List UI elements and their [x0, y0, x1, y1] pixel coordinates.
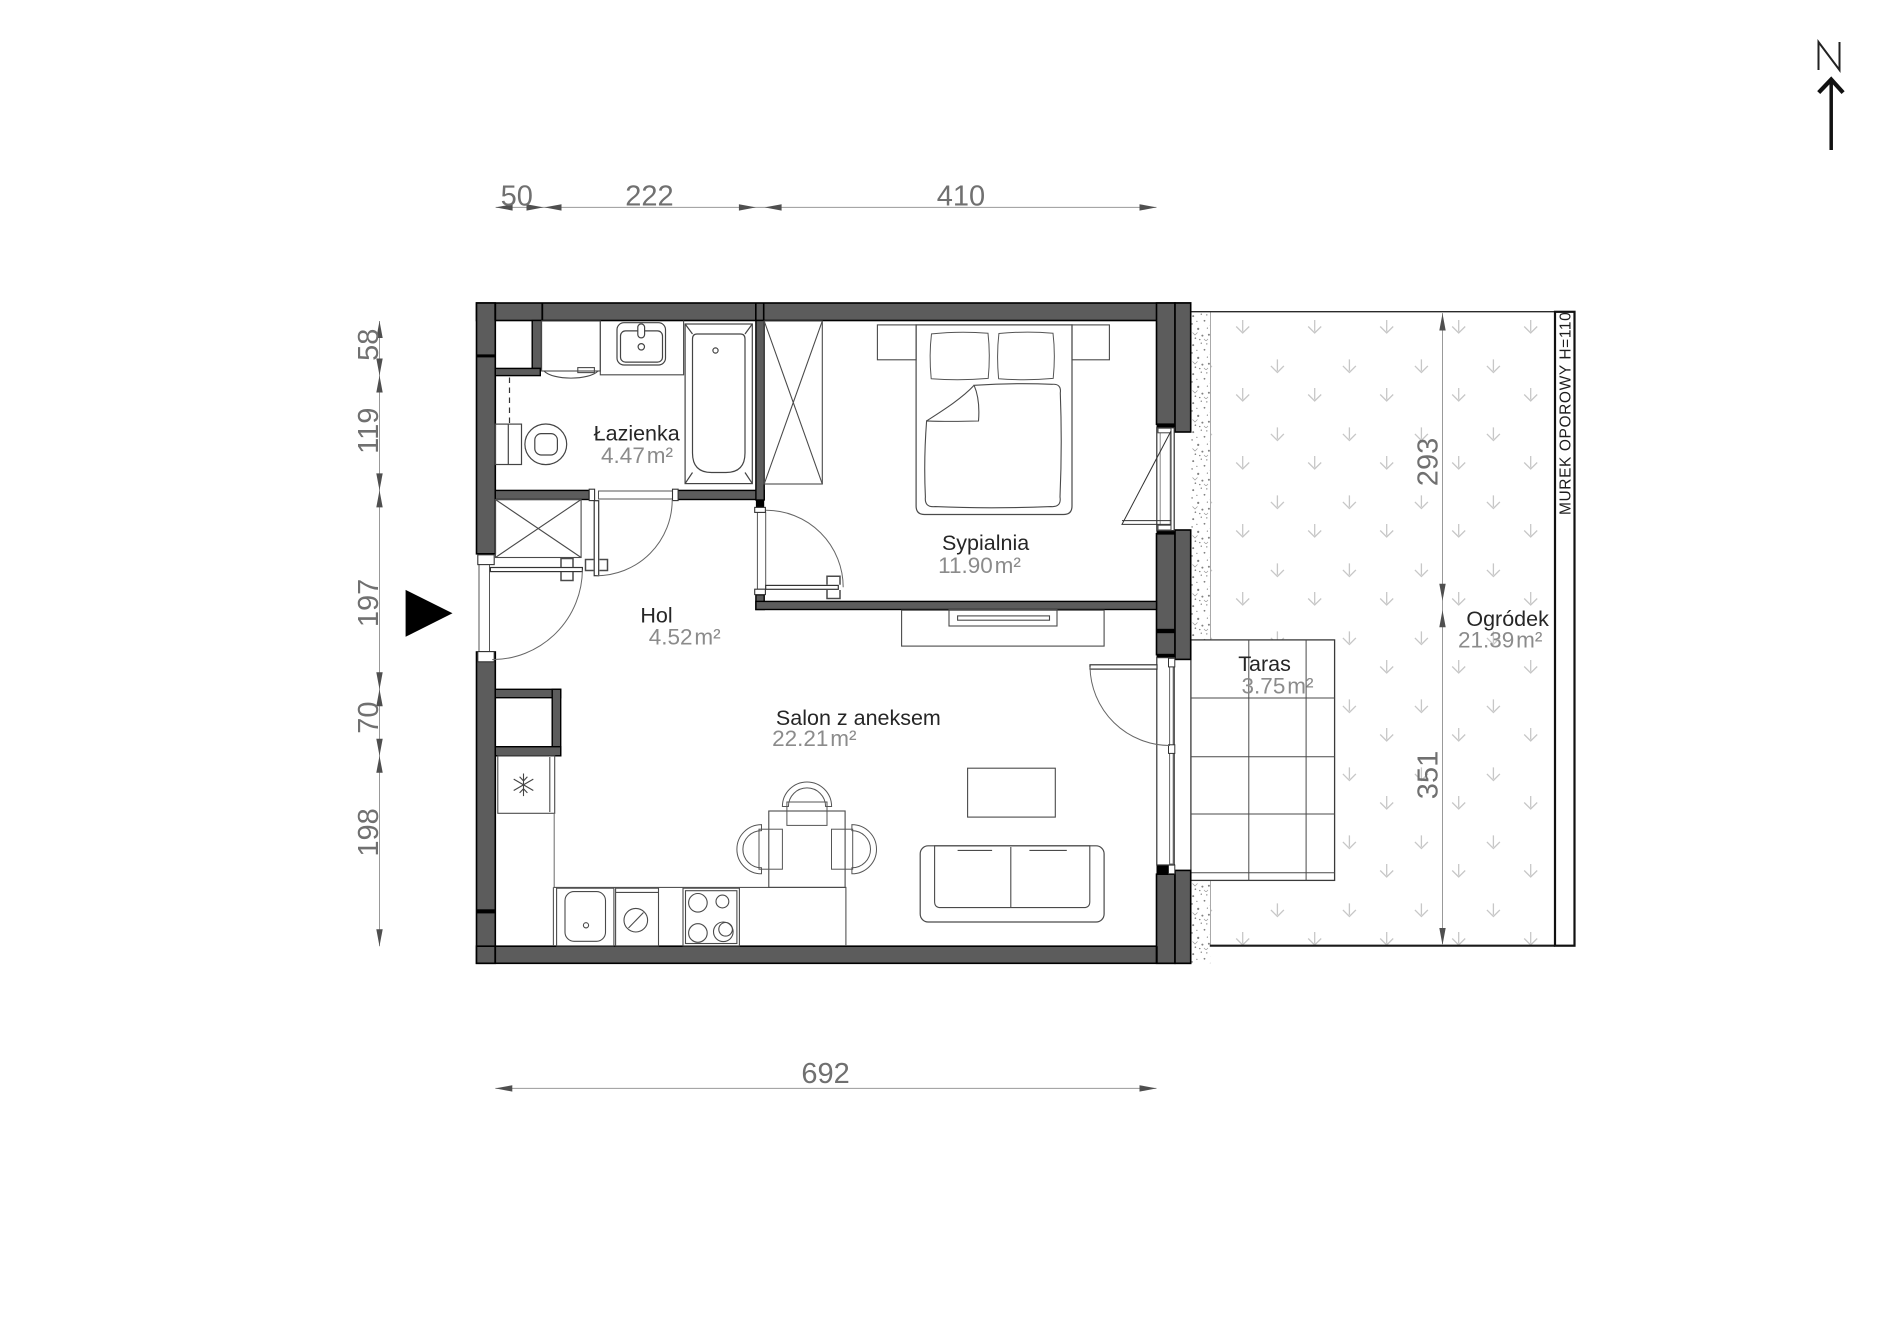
svg-text:MUREK OPOROWY H=110: MUREK OPOROWY H=110: [1558, 312, 1575, 515]
svg-text:293: 293: [1413, 438, 1445, 486]
svg-text:58: 58: [353, 329, 385, 361]
svg-text:22.21 m²: 22.21 m²: [772, 726, 857, 751]
svg-text:50: 50: [501, 181, 533, 213]
svg-text:351: 351: [1413, 751, 1445, 799]
svg-text:692: 692: [801, 1058, 849, 1090]
svg-text:3.75 m²: 3.75 m²: [1242, 673, 1314, 698]
svg-text:Taras: Taras: [1238, 652, 1291, 676]
svg-text:198: 198: [353, 808, 385, 856]
svg-text:410: 410: [937, 181, 985, 213]
svg-text:70: 70: [353, 701, 385, 733]
svg-text:4.52 m²: 4.52 m²: [649, 625, 721, 650]
svg-text:Łazienka: Łazienka: [594, 422, 680, 446]
svg-text:Sypialnia: Sypialnia: [942, 531, 1029, 555]
svg-text:21.39 m²: 21.39 m²: [1458, 627, 1543, 652]
svg-text:119: 119: [353, 408, 385, 454]
svg-text:222: 222: [625, 181, 673, 213]
svg-text:4.47 m²: 4.47 m²: [601, 443, 673, 468]
svg-text:11.90 m²: 11.90 m²: [938, 553, 1021, 578]
svg-text:197: 197: [353, 579, 385, 627]
